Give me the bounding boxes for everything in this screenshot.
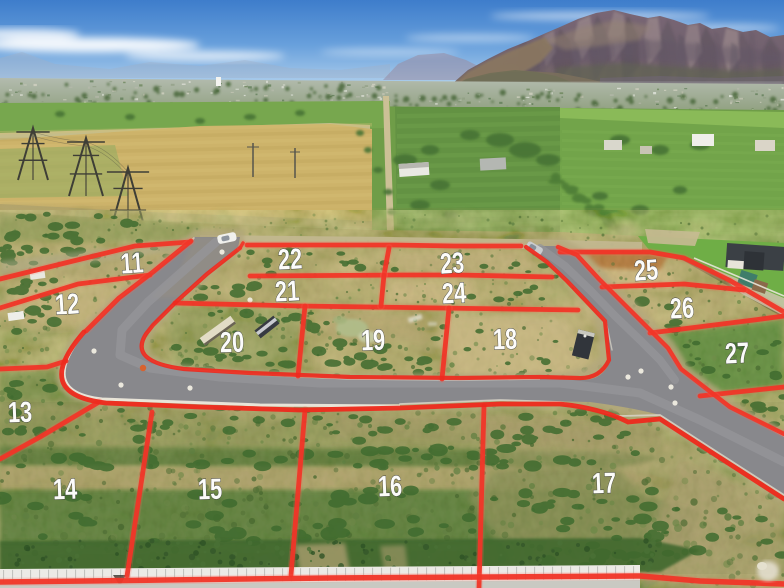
svg-text:27: 27 [724, 337, 750, 370]
svg-text:21: 21 [274, 275, 300, 308]
svg-text:24: 24 [441, 277, 467, 310]
svg-text:22: 22 [277, 243, 303, 276]
svg-text:16: 16 [377, 471, 402, 504]
svg-text:15: 15 [197, 474, 222, 507]
svg-text:19: 19 [360, 325, 385, 358]
svg-text:18: 18 [492, 324, 517, 357]
svg-text:12: 12 [54, 288, 80, 321]
svg-text:14: 14 [52, 474, 78, 507]
svg-text:20: 20 [219, 327, 244, 360]
svg-text:25: 25 [633, 254, 659, 287]
svg-text:13: 13 [7, 397, 32, 430]
svg-text:23: 23 [439, 247, 465, 280]
svg-text:11: 11 [120, 247, 145, 280]
svg-text:26: 26 [669, 292, 695, 325]
svg-text:17: 17 [591, 468, 616, 501]
